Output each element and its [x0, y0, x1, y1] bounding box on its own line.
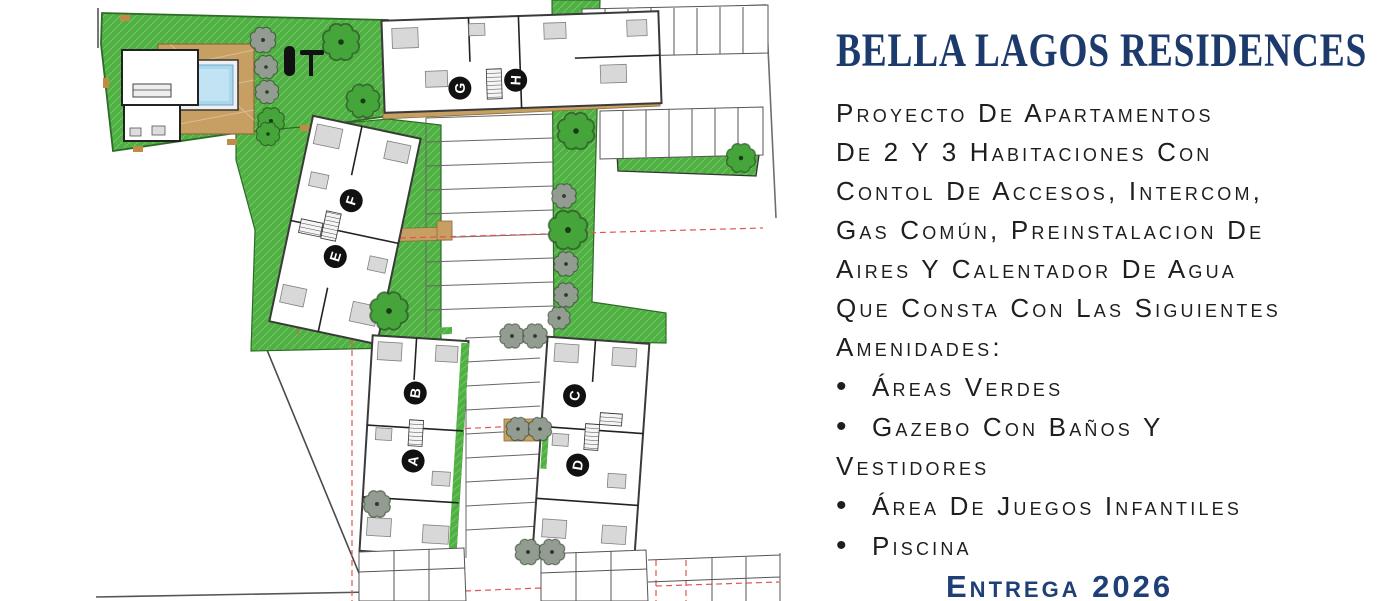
amenity-item: •Piscina	[836, 526, 1394, 566]
amenity-label: Gazebo Con Baños Y	[872, 412, 1164, 442]
stairs-icon	[408, 420, 424, 447]
description-line: Amenidades:	[836, 328, 1394, 367]
description-line: Que Consta Con Las Siguientes	[836, 289, 1394, 328]
info-panel: BELLA LAGOS RESIDENCES Proyecto De Apart…	[836, 0, 1394, 601]
stairs-icon	[486, 69, 502, 100]
flyer: G H F E	[0, 0, 1399, 601]
description-line: Contol De Accesos, Intercom,	[836, 172, 1394, 211]
parking-south	[359, 548, 780, 601]
project-title: BELLA LAGOS RESIDENCES	[836, 20, 1271, 82]
amenity-item: •Área De Juegos Infantiles	[836, 486, 1394, 526]
amenity-label: Piscina	[872, 531, 972, 561]
bullet-icon: •	[836, 367, 872, 406]
amenity-item-continued: Vestidores	[836, 447, 1394, 486]
project-description: Proyecto De Apartamentos De 2 Y 3 Habita…	[836, 94, 1394, 566]
description-line: De 2 Y 3 Habitaciones Con	[836, 133, 1394, 172]
building-GH: G H	[381, 11, 661, 113]
bullet-icon: •	[836, 486, 872, 525]
amenity-item: •Gazebo Con Baños Y	[836, 407, 1394, 447]
site-plan: G H F E	[0, 0, 835, 601]
building-AB: B A	[359, 335, 469, 557]
tree-icon	[523, 324, 547, 348]
amenity-label: Área De Juegos Infantiles	[872, 491, 1242, 521]
parking-column-south	[466, 335, 540, 558]
bullet-icon: •	[836, 407, 872, 446]
amenity-item: •Áreas Verdes	[836, 367, 1394, 407]
bullet-icon: •	[836, 526, 872, 565]
pergola-icon	[600, 413, 623, 427]
building-CD: C D	[533, 337, 650, 560]
description-line: Aires Y Calentador De Agua	[836, 250, 1394, 289]
description-line: Proyecto De Apartamentos	[836, 94, 1394, 133]
tree-icon	[500, 324, 524, 348]
description-line: Gas Común, Preinstalacion De	[836, 211, 1394, 250]
svg-text:G: G	[452, 82, 469, 94]
delivery-date: Entrega 2026	[946, 569, 1394, 601]
stairs-icon	[584, 424, 600, 451]
svg-text:H: H	[507, 75, 524, 86]
amenity-label: Áreas Verdes	[872, 372, 1063, 402]
site-plan-container: G H F E	[0, 0, 835, 601]
